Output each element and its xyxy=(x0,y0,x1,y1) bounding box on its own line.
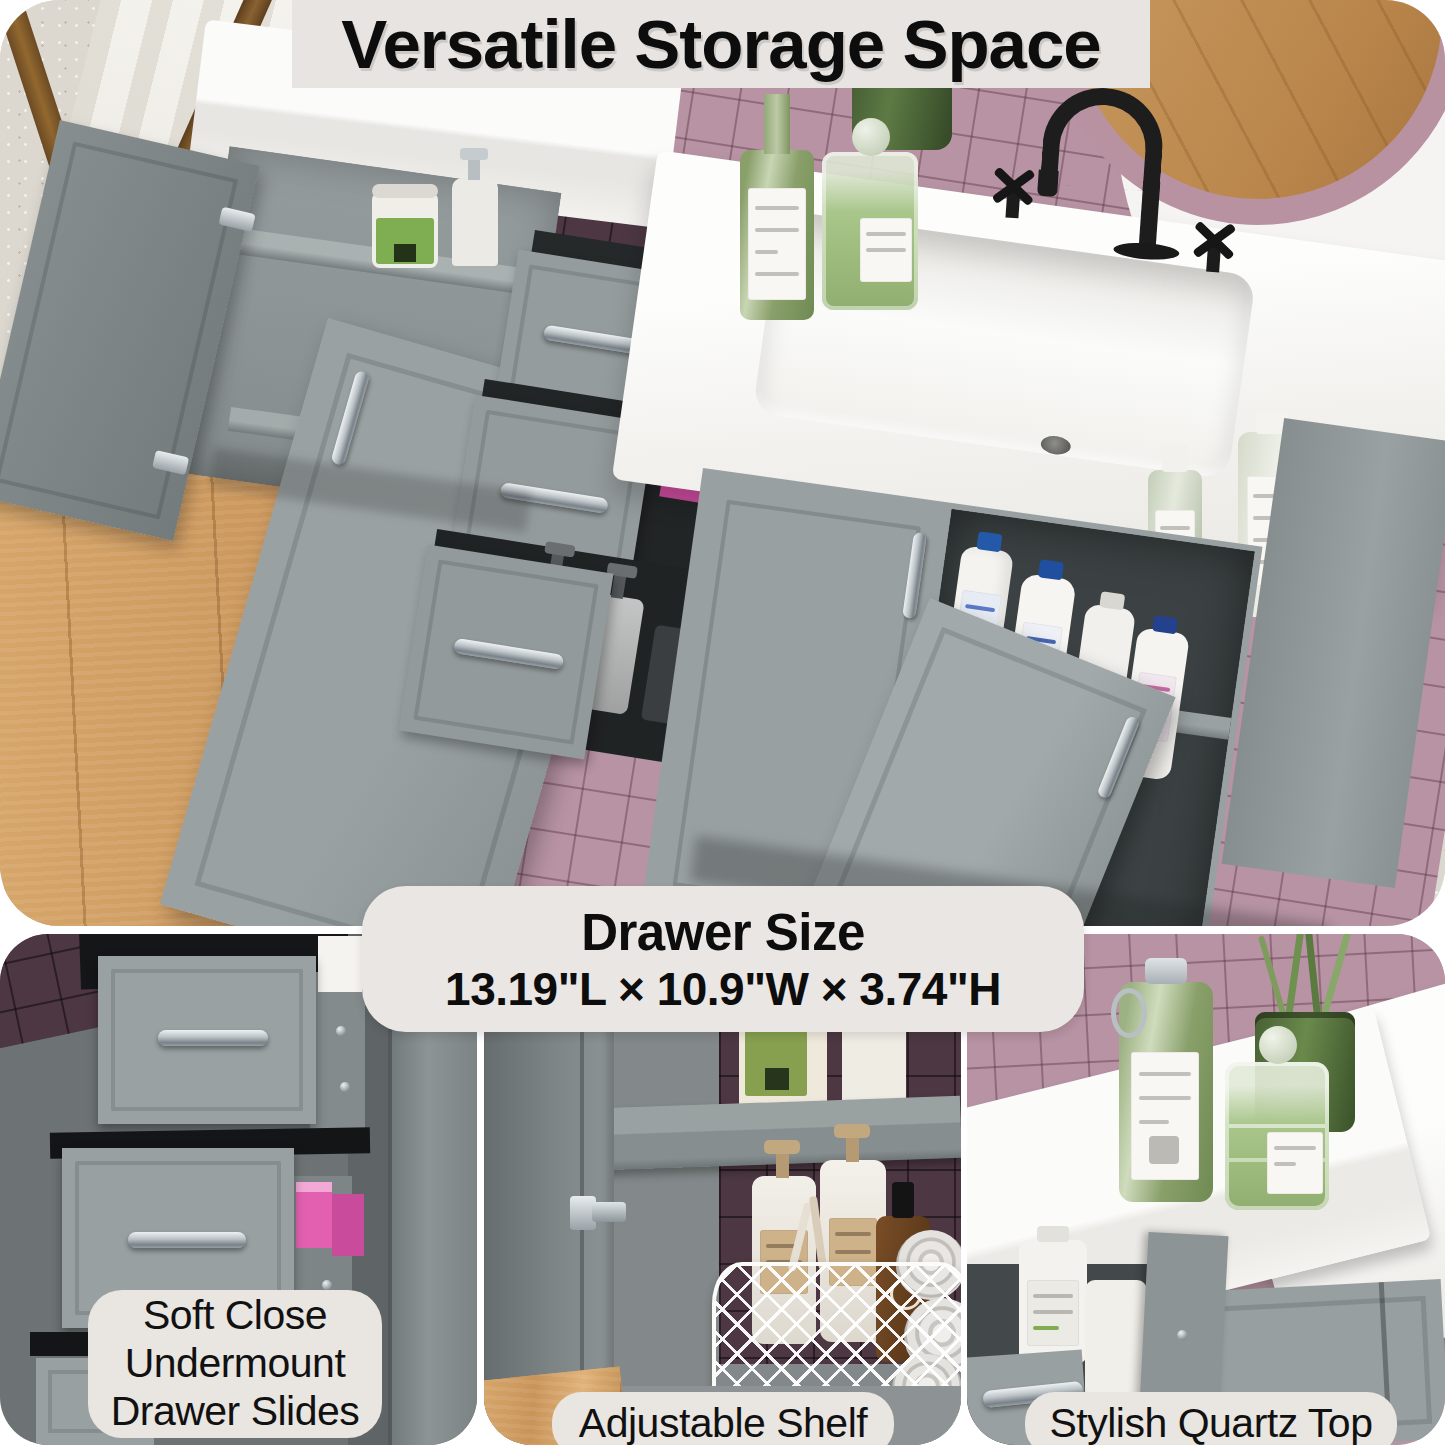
bottle-label xyxy=(748,188,806,300)
faucet-stem xyxy=(1138,181,1160,252)
drawer-item-bottle xyxy=(1019,1240,1087,1364)
bottle-clamp xyxy=(1111,988,1147,1038)
caption-line: Soft Close xyxy=(143,1292,327,1340)
title-banner: Versatile Storage Space xyxy=(292,0,1150,88)
jar-lid xyxy=(372,184,438,198)
jar-stopper xyxy=(852,118,890,156)
green-jar xyxy=(1225,1062,1329,1210)
pump-top xyxy=(776,1150,789,1178)
drawer-screw xyxy=(1177,1330,1188,1341)
bottle-cap xyxy=(1038,559,1064,580)
caption-line: Drawer Slides xyxy=(111,1388,360,1436)
hinge-arm xyxy=(592,1202,626,1222)
feature-caption-soft-close: Soft Close Undermount Drawer Slides xyxy=(88,1290,382,1438)
bottle-label xyxy=(860,218,912,282)
pump-top xyxy=(846,1134,859,1162)
bottle-cap xyxy=(1037,1226,1069,1242)
drawer-item-white xyxy=(318,936,362,992)
faucet xyxy=(993,71,1267,299)
faucet-base xyxy=(1113,241,1180,262)
label-etching xyxy=(1149,1136,1179,1164)
drawer-side-box xyxy=(310,972,365,1130)
pump-spout xyxy=(764,1140,800,1154)
bottle-cap xyxy=(1152,615,1178,634)
jar-on-shelf xyxy=(372,192,438,268)
jar-label-dark xyxy=(394,244,416,262)
faucet-handle-right xyxy=(1182,212,1246,276)
bottle-neck xyxy=(764,94,790,154)
drawer-3-face xyxy=(398,544,613,759)
faucet-spout xyxy=(1040,84,1167,192)
caption-line: Stylish Quartz Top xyxy=(1050,1400,1373,1445)
feature-caption-quartz-top: Stylish Quartz Top xyxy=(1025,1392,1397,1445)
bottle-cap xyxy=(976,531,1002,552)
caption-line: Adjustable Shelf xyxy=(579,1400,867,1445)
dispenser-spout xyxy=(460,148,488,160)
drawer-handle xyxy=(128,1232,246,1248)
drawer-screw xyxy=(336,1026,346,1036)
faucet-handle-left xyxy=(981,158,1045,222)
drawer-size-banner: Drawer Size 13.19"L × 10.9"W × 3.74"H xyxy=(362,886,1084,1032)
drawer-size-dimensions: 13.19"L × 10.9"W × 3.74"H xyxy=(445,962,1001,1016)
bottle-label xyxy=(1027,1280,1079,1346)
bottle-label xyxy=(1131,1052,1199,1180)
dropper-cap xyxy=(892,1182,914,1218)
spray-head xyxy=(1162,444,1188,472)
drawer-item-pink xyxy=(332,1194,364,1256)
jar-label-dark xyxy=(765,1068,789,1090)
bottle-cap xyxy=(1145,958,1187,984)
hinge-icon xyxy=(570,1190,630,1234)
product-image: Versatile Storage Space xyxy=(0,0,1445,1445)
drawer-face xyxy=(98,956,316,1124)
drawer-screw xyxy=(322,1280,332,1290)
jar-stopper xyxy=(1259,1026,1297,1064)
green-jar xyxy=(822,152,918,310)
green-bottle-tall xyxy=(740,150,814,320)
main-photo xyxy=(0,0,1445,926)
page-title: Versatile Storage Space xyxy=(341,5,1100,84)
bottle-label xyxy=(1267,1132,1323,1194)
feature-caption-adjustable-shelf: Adjustable Shelf xyxy=(552,1392,894,1445)
green-bottle-tall xyxy=(1119,982,1213,1202)
caption-line: Undermount xyxy=(125,1340,346,1388)
jar-seam xyxy=(1229,1124,1325,1128)
pump-spout xyxy=(834,1124,870,1138)
bottle-cap xyxy=(1099,591,1125,610)
drawer-size-heading: Drawer Size xyxy=(581,903,865,962)
drawer-handle xyxy=(158,1030,268,1046)
dispenser-on-shelf xyxy=(452,178,498,266)
drawer-item-pink xyxy=(296,1182,332,1248)
drawer-screw xyxy=(340,1082,350,1092)
